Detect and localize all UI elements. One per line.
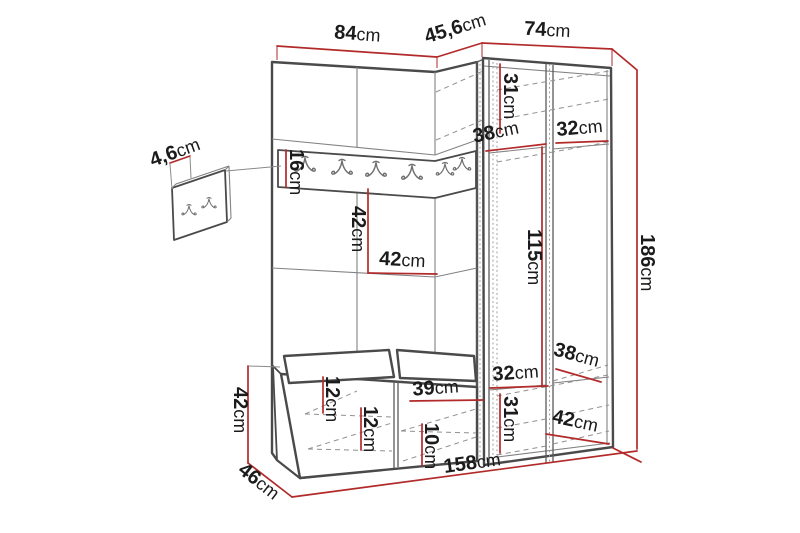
dim-label-bench-height: 42cm (229, 387, 251, 433)
wall-panel-group (170, 157, 281, 240)
dim-label-top-width-right: 74cm (524, 18, 571, 42)
wall-panel-face (172, 170, 227, 240)
dim-label-bench-upper-spacing: 12cm (321, 376, 343, 422)
dim-label-bottom-compartment: 31cm (499, 396, 521, 442)
dim-line-bench-right-width (410, 400, 483, 401)
dim-label-top-width-corner: 45,6cm (422, 9, 489, 48)
dim-label-wardrobe-top-compartment: 31cm (499, 73, 521, 119)
dim-label-total-height: 186cm (636, 234, 658, 291)
bench-cushion-right (397, 350, 476, 381)
dim-label-open-height: 42cm (347, 206, 369, 252)
dim-label-hanging-height: 115cm (523, 229, 545, 285)
dim-label-hook-rail-height: 16cm (285, 149, 307, 195)
dim-line-top-width-corner (437, 43, 482, 57)
hallway-furniture-dimension-diagram: 84cm 45,6cm 74cm 4,6cm 16cm 42cm 42cm 31… (0, 0, 800, 533)
dim-label-bench-depth: 46cm (234, 459, 284, 505)
dim-line-top-width-right (482, 43, 612, 49)
dim-label-bottom-shelf-width: 32cm (492, 360, 540, 385)
dim-label-bench-lower-spacing: 12cm (359, 406, 381, 452)
dim-label-bench-right-width: 39cm (412, 375, 460, 400)
dim-label-shoe-shelf-spacing: 10cm (420, 423, 442, 469)
dim-label-panel-thickness: 4,6cm (147, 133, 203, 171)
dim-line-open-width (368, 273, 437, 274)
dim-label-top-width-left: 84cm (334, 21, 382, 46)
dim-line-top-width-left (277, 46, 437, 57)
diagram-canvas: 84cm 45,6cm 74cm 4,6cm 16cm 42cm 42cm 31… (0, 0, 800, 533)
dim-label-open-width: 42cm (379, 248, 426, 272)
